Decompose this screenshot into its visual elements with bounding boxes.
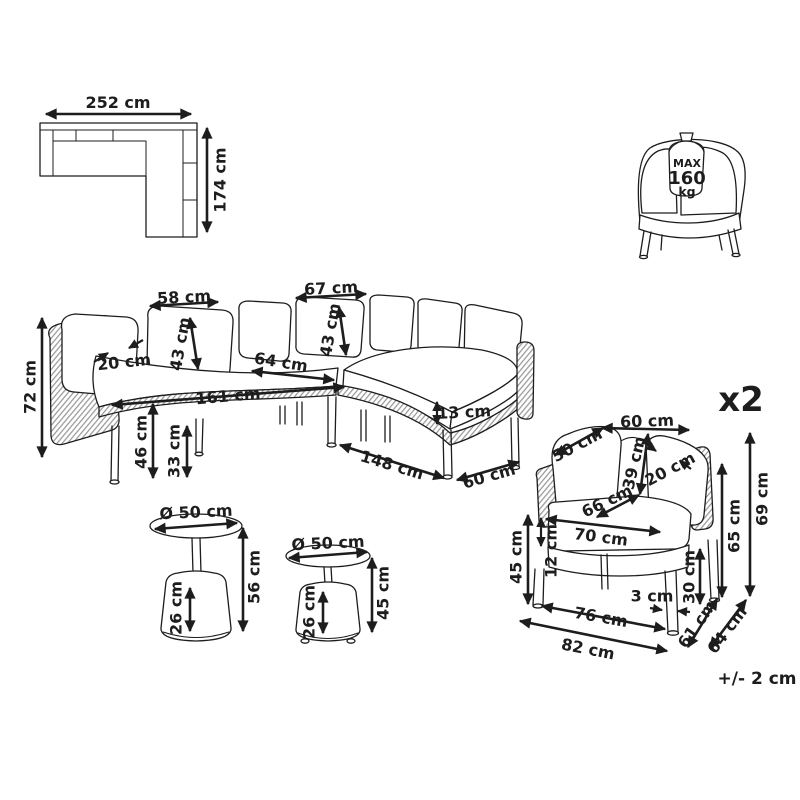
dim-sofa-height: 72 cm	[21, 318, 43, 457]
dim-armchair-total-width: 82 cm	[520, 621, 667, 663]
tolerance-note: +/- 2 cm	[718, 669, 797, 689]
dim-label: 252 cm	[85, 93, 150, 112]
dim-label: 148 cm	[358, 446, 426, 483]
side-table-small: Ø 50 cm 45 cm 26 cm	[286, 532, 393, 644]
weight-unit: kg	[678, 184, 695, 199]
armchair-leg-rear-right	[708, 540, 719, 599]
quantity-badge: x2	[718, 380, 764, 420]
dim-arrow	[678, 611, 690, 612]
cushion	[370, 295, 414, 352]
dim-label: 12 cm	[542, 524, 561, 578]
chair-foot	[732, 253, 740, 256]
dim-label: 76 cm	[573, 603, 629, 631]
sofa-top-view: 252 cm 174 cm	[40, 93, 230, 237]
dim-armchair-seat-cushion-thickness: 12 cm	[541, 518, 561, 578]
dim-armchair-front-width: 76 cm	[542, 603, 665, 631]
dim-topview-width: 252 cm	[46, 93, 191, 114]
armchair: x2 60 cm 50 cm 39 cm 20 cm 66 cm 70 cm	[507, 380, 772, 663]
table-stem	[192, 538, 201, 573]
foot-cap	[195, 452, 203, 456]
dim-label: Ø 50 cm	[159, 501, 233, 524]
weight-knob	[680, 133, 693, 141]
leg	[511, 418, 519, 466]
dim-label: 174 cm	[211, 147, 230, 212]
leg	[385, 416, 390, 442]
dim-label: 45 cm	[507, 530, 526, 584]
dim-label: 65 cm	[725, 499, 744, 553]
dim-label: 30 cm	[680, 550, 699, 604]
dim-label: 3 cm	[631, 587, 674, 606]
dim-label: 60 cm	[620, 411, 675, 432]
foot-cap	[443, 475, 452, 479]
dim-label: 46 cm	[132, 415, 151, 469]
dim-label: 33 cm	[165, 424, 184, 478]
weight-badge: MAX 160 kg	[668, 133, 706, 199]
weight-capacity-chair: MAX 160 kg	[638, 133, 745, 259]
dim-sofa-seat-length-right: 148 cm	[340, 445, 444, 484]
corner-sofa: 72 cm 20 cm 58 cm 43 cm 67 cm 43 cm 64 c…	[21, 277, 535, 492]
dim-label: 26 cm	[300, 585, 319, 639]
table-foot	[347, 639, 355, 643]
top-view-outline	[40, 123, 197, 237]
dim-label: 26 cm	[167, 581, 186, 635]
dim-label: Ø 50 cm	[291, 532, 365, 555]
side-table-large: Ø 50 cm 56 cm 26 cm	[150, 501, 264, 641]
dim-armchair-armrest-height: 65 cm	[722, 464, 744, 597]
leg	[196, 419, 203, 453]
dim-table-large-height: 56 cm	[243, 528, 264, 631]
dimension-sheet: 252 cm 174 cm MAX 160 kg	[0, 0, 800, 800]
dimension-diagram: 252 cm 174 cm MAX 160 kg	[0, 0, 800, 800]
leg	[328, 397, 336, 444]
dim-label: 60 cm	[460, 459, 517, 492]
chair-seat	[639, 213, 741, 238]
dim-armchair-back-width: 60 cm	[602, 411, 689, 432]
dim-sofa-seat-height: 46 cm	[132, 404, 154, 478]
dim-armchair-total-height: 69 cm	[750, 433, 772, 596]
chair-foot	[640, 255, 648, 258]
leg	[297, 402, 302, 425]
dim-topview-depth: 174 cm	[207, 128, 230, 232]
dim-label: 69 cm	[753, 472, 772, 526]
dim-sofa-seat-depth-right: 60 cm	[457, 459, 519, 492]
dim-sofa-clearance: 33 cm	[165, 424, 188, 478]
dim-table-small-height: 45 cm	[372, 558, 393, 632]
dim-armchair-clearance: 30 cm	[680, 549, 701, 604]
dim-label: 45 cm	[374, 566, 393, 620]
sofa-right-arm-weave	[517, 342, 534, 419]
foot-cap	[110, 480, 119, 484]
foot-cap	[327, 443, 336, 447]
dim-label: 72 cm	[21, 360, 40, 414]
dim-label: 56 cm	[245, 550, 264, 604]
dim-sofa-back-cushion-width-right: 67 cm	[296, 277, 366, 299]
leg	[361, 410, 366, 441]
leg	[280, 406, 285, 424]
foot-cap	[533, 604, 543, 608]
dim-label: 67 cm	[304, 277, 359, 299]
dim-armchair-seat-height: 45 cm	[507, 515, 529, 604]
dim-sofa-back-cushion-width-left: 58 cm	[150, 286, 218, 308]
dim-label: 58 cm	[157, 286, 212, 308]
dim-arrow	[650, 608, 662, 610]
dim-label: 13 cm	[437, 401, 492, 423]
leg	[111, 426, 119, 481]
